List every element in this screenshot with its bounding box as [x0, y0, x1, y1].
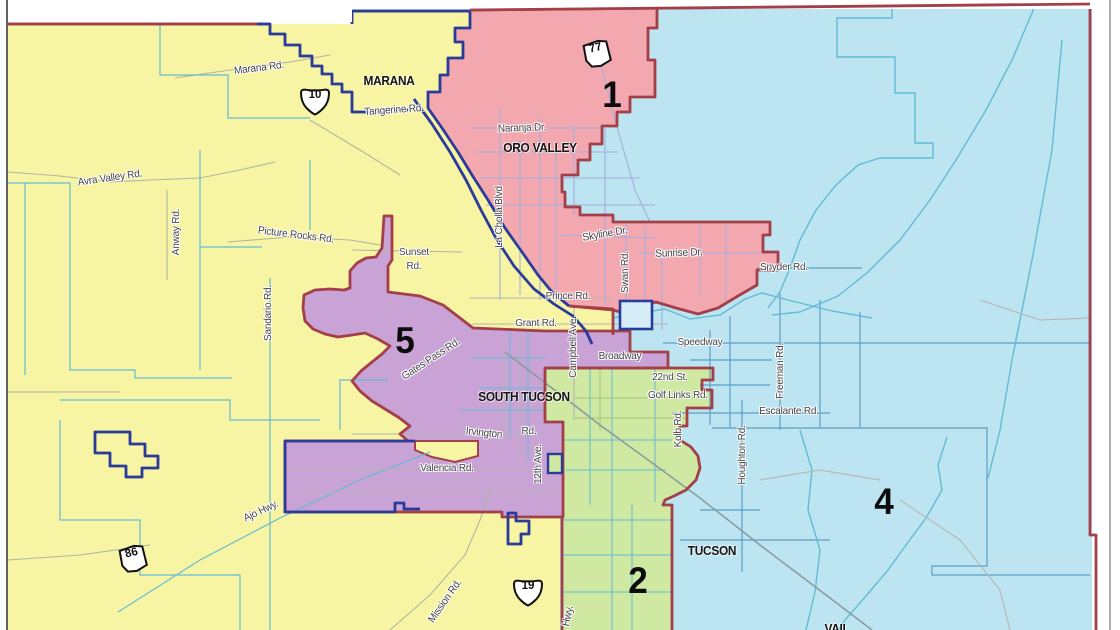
top-margin-left [0, 0, 352, 22]
district-map-graphic [0, 0, 1120, 630]
municipal-notch [548, 454, 562, 473]
map-canvas: Marana Rd. Tangerine Rd. Avra Valley Rd.… [0, 0, 1120, 630]
interstate-10-shield: 10 [298, 86, 332, 116]
interstate-19-shield: 19 [511, 577, 545, 607]
municipal-pocket [620, 301, 652, 329]
